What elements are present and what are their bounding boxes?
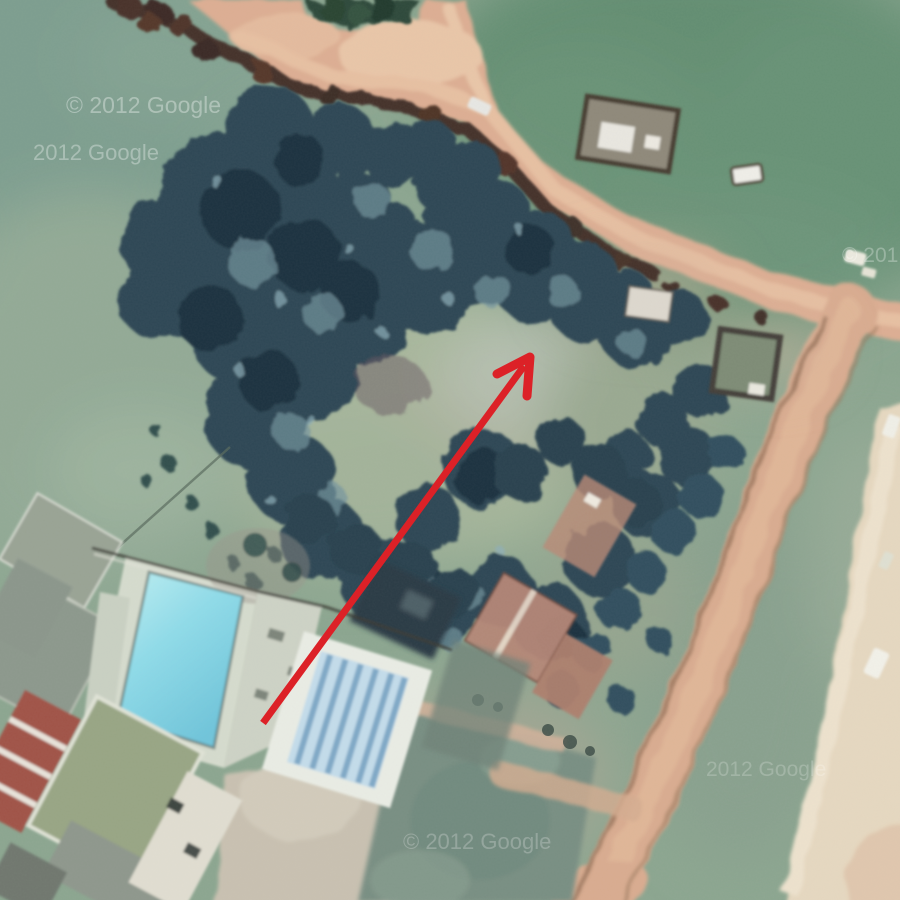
- svg-text:© 2012 Google: © 2012 Google: [403, 829, 551, 854]
- svg-text:© 2012 Google: © 2012 Google: [66, 92, 221, 118]
- svg-text:© 201: © 201: [842, 244, 898, 267]
- svg-text:2012 Google: 2012 Google: [33, 140, 159, 165]
- svg-text:2012 Google: 2012 Google: [706, 758, 826, 781]
